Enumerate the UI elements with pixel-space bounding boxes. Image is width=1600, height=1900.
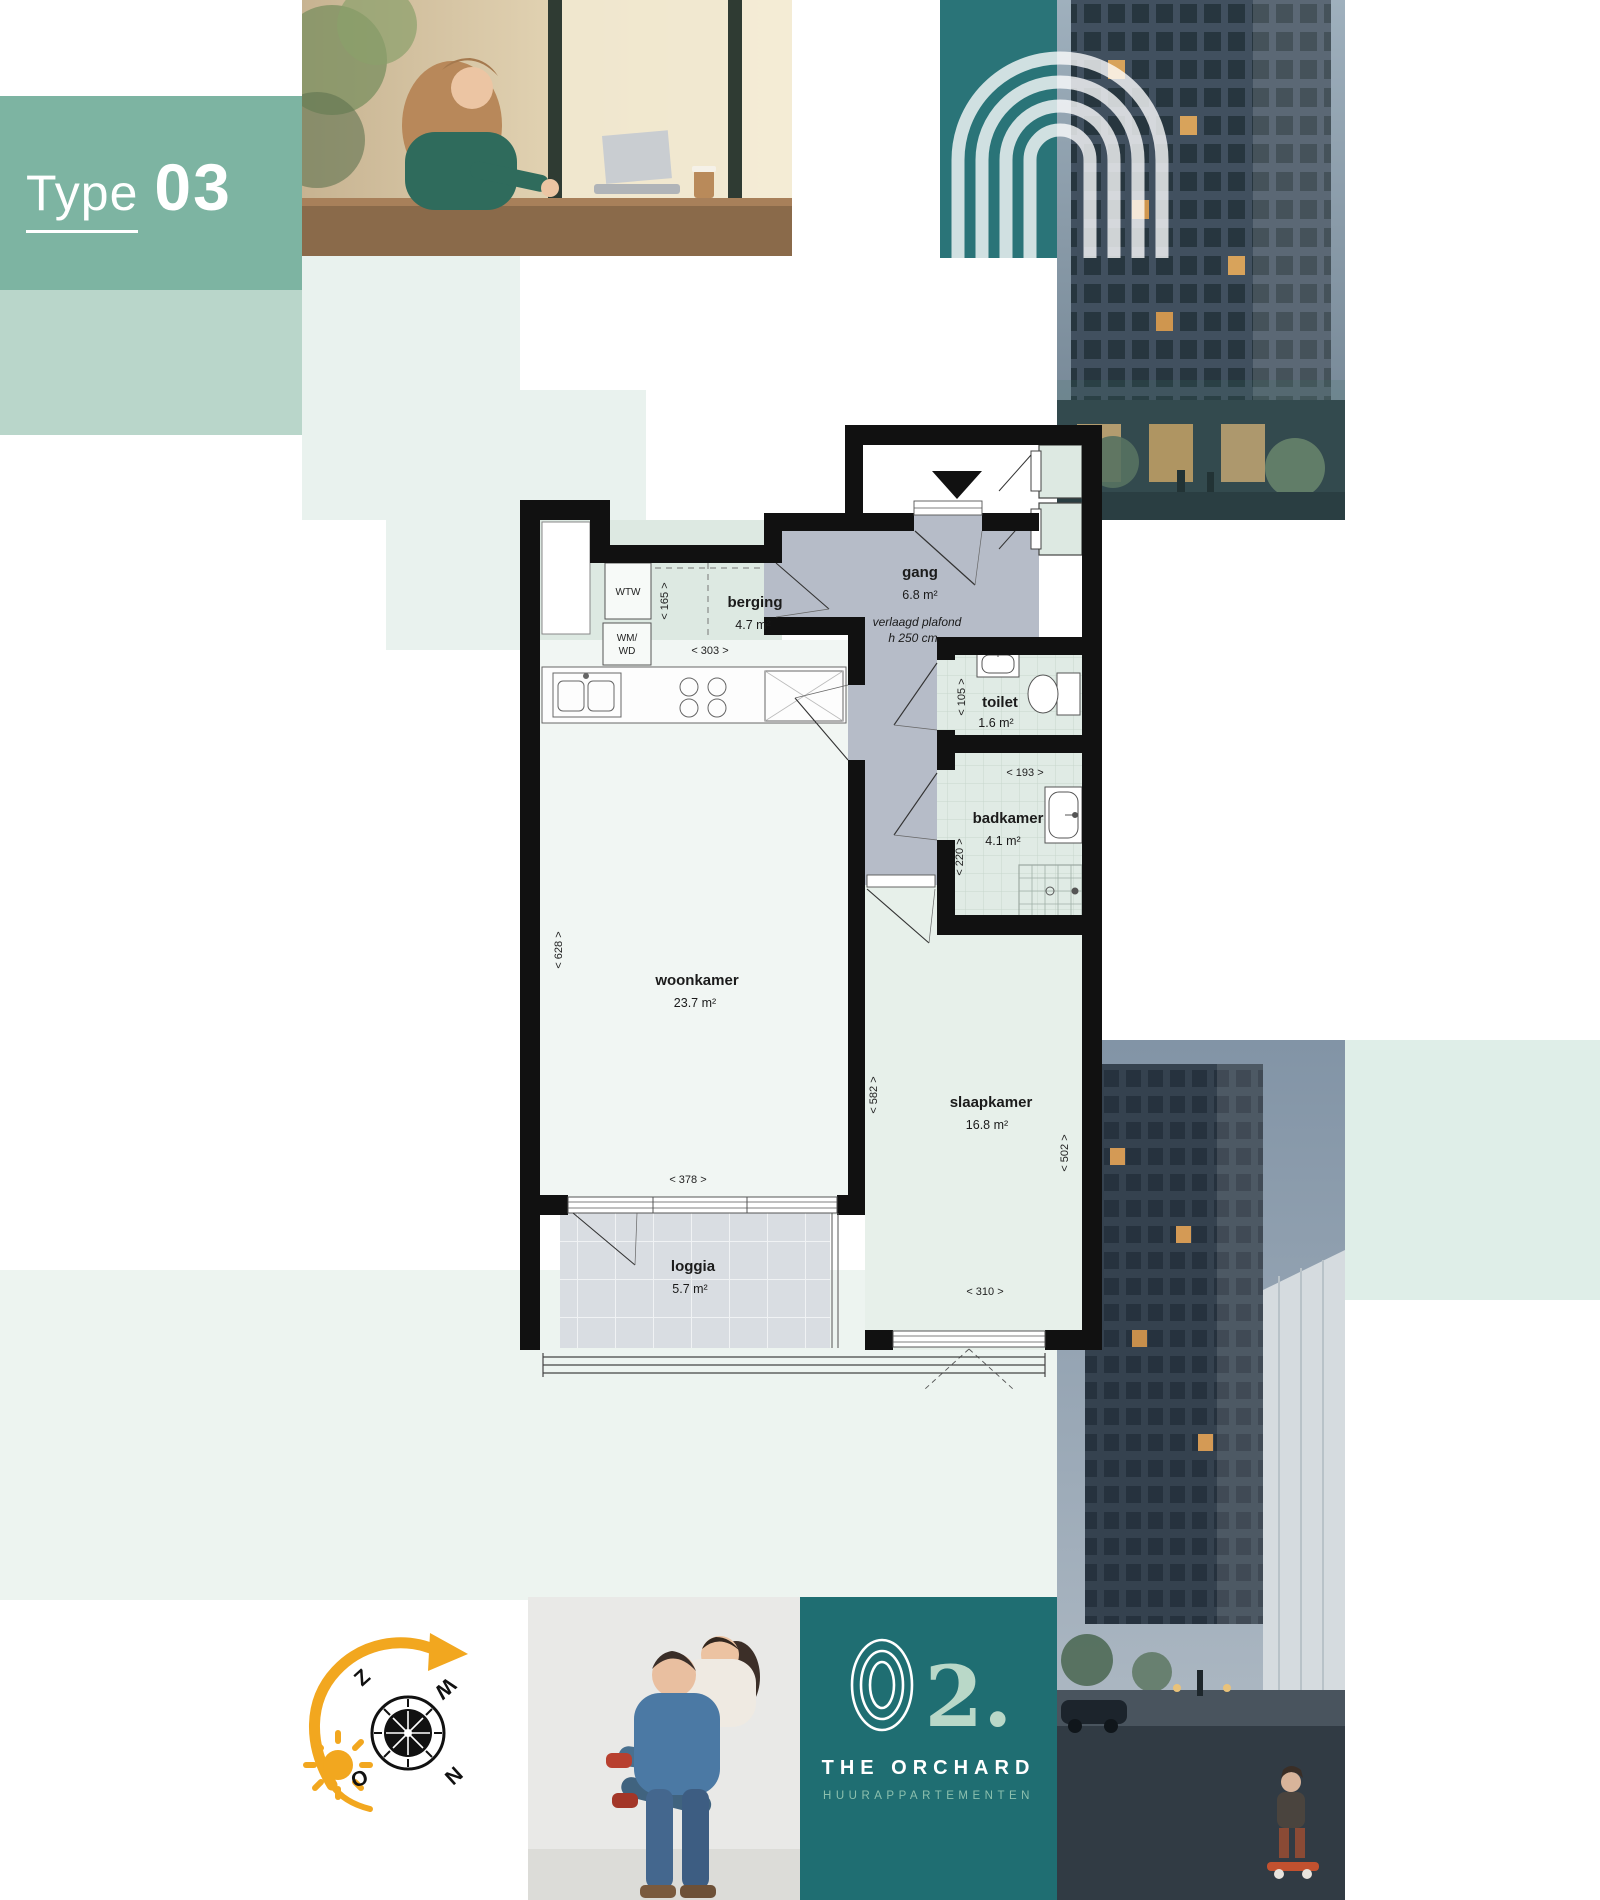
dim-193: < 193 > (1006, 767, 1043, 779)
coffee-cup (692, 166, 716, 198)
berging-name: berging (728, 594, 783, 611)
loggia-name: loggia (671, 1258, 716, 1275)
dim-220: < 220 > (954, 838, 966, 875)
logo-zero-rings (845, 1635, 919, 1735)
floorplan: WTW WM/ WD (425, 405, 1125, 1405)
dim-502: < 502 > (1059, 1134, 1071, 1171)
compass-letter-w: W (430, 1673, 460, 1703)
dim-582: < 582 > (868, 1076, 880, 1113)
couple-photo (528, 1597, 800, 1900)
logo-monogram: 2. (845, 1631, 1013, 1735)
type-number: 03 (154, 154, 231, 220)
teal-arc-block (940, 0, 1057, 258)
laptop (594, 130, 680, 194)
wm-wd-unit (603, 623, 651, 665)
compass-letter-z: Z (350, 1665, 375, 1691)
logo-name: THE ORCHARD (822, 1757, 1036, 1780)
mint-square-right (1345, 1040, 1600, 1300)
type-label: Type (26, 168, 138, 233)
compass-graphic: Z W N O (300, 1625, 485, 1820)
dim-105: < 105 > (956, 678, 968, 715)
dim-628: < 628 > (553, 931, 565, 968)
gang-note-2: h 250 cm (888, 631, 937, 645)
brochure-page: Type 03 (0, 0, 1600, 1900)
type-title-block: Type 03 (0, 96, 302, 290)
slaapkamer-door-sill (867, 875, 935, 887)
slaapkamer-window (893, 1331, 1045, 1389)
compass-rose (372, 1697, 444, 1769)
wm-label: WM/ (617, 633, 638, 644)
shaft-box-1 (1039, 445, 1082, 498)
slaapkamer-area: 16.8 m² (966, 1118, 1008, 1132)
woonkamer-name: woonkamer (654, 972, 739, 989)
gang-area: 6.8 m² (902, 588, 937, 602)
wd-label: WD (619, 646, 636, 657)
logo-tagline: HUURAPPARTEMENTEN (823, 1790, 1034, 1802)
compass-letter-o: O (348, 1766, 371, 1793)
badkamer-name: badkamer (973, 810, 1044, 827)
mint-square-mid (0, 290, 302, 435)
loggia-area: 5.7 m² (672, 1282, 707, 1296)
dim-378: < 378 > (669, 1174, 706, 1186)
badkamer-area: 4.1 m² (985, 834, 1020, 848)
berging-area: 4.7 m² (735, 618, 770, 632)
dim-303: < 303 > (691, 645, 728, 657)
toilet-area: 1.6 m² (978, 716, 1013, 730)
woonkamer-area: 23.7 m² (674, 996, 716, 1010)
wtw-label: WTW (616, 587, 642, 598)
photo-woman-laptop (302, 0, 792, 256)
entrance-arrow (932, 471, 982, 499)
kitchen-counter (542, 667, 846, 723)
dim-310: < 310 > (966, 1286, 1003, 1298)
logo-number: 2. (925, 1659, 1013, 1735)
toilet-name: toilet (982, 694, 1018, 711)
shaft-box-2 (1039, 503, 1082, 555)
slaapkamer-name: slaapkamer (950, 1094, 1033, 1111)
shaft-niche (542, 522, 590, 634)
loggia-glass-divider (832, 1213, 838, 1348)
gang-note-1: verlaagd plafond (873, 615, 962, 629)
dim-165: < 165 > (659, 582, 671, 619)
logo-block: 2. THE ORCHARD HUURAPPARTEMENTEN (800, 1597, 1057, 1900)
balcony-railing (543, 1353, 1045, 1377)
compass-letter-n: N (441, 1763, 468, 1790)
gang-name: gang (902, 564, 938, 581)
room-woonkamer-floor (540, 640, 865, 1215)
